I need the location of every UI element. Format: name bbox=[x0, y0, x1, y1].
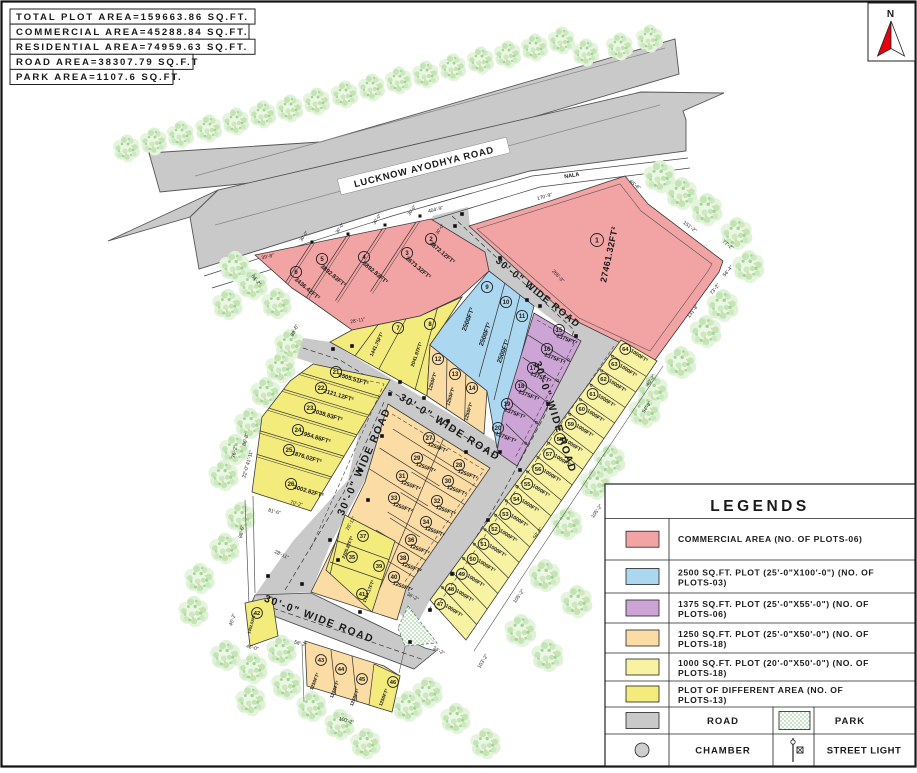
svg-text:47: 47 bbox=[437, 602, 443, 608]
svg-text:PLOTS-13): PLOTS-13) bbox=[678, 695, 727, 705]
svg-text:TOTAL PLOT AREA=159663.86 SQ.F: TOTAL PLOT AREA=159663.86 SQ.FT. bbox=[16, 12, 249, 23]
svg-text:1250 SQ.FT. PLOT (25'-0"X50'-0: 1250 SQ.FT. PLOT (25'-0"X50'-0") (NO. OF bbox=[678, 629, 869, 639]
svg-text:PLOTS-06): PLOTS-06) bbox=[678, 609, 727, 619]
svg-text:N: N bbox=[887, 9, 894, 20]
svg-text:43: 43 bbox=[318, 658, 325, 664]
svg-text:60: 60 bbox=[578, 407, 584, 413]
svg-text:ROAD: ROAD bbox=[707, 716, 739, 727]
svg-text:RESIDENTIAL AREA=74959.63 SQ.F: RESIDENTIAL AREA=74959.63 SQ.FT. bbox=[16, 42, 248, 53]
svg-text:57: 57 bbox=[546, 452, 552, 458]
svg-text:14: 14 bbox=[469, 386, 476, 392]
svg-text:1375 SQ.FT. PLOT (25'-0"X55'-0: 1375 SQ.FT. PLOT (25'-0"X55'-0") (NO. OF bbox=[678, 599, 869, 609]
svg-text:10: 10 bbox=[503, 300, 510, 306]
svg-text:1: 1 bbox=[595, 238, 599, 245]
svg-text:12: 12 bbox=[435, 357, 442, 363]
svg-text:PLOT OF DIFFERENT AREA (NO. OF: PLOT OF DIFFERENT AREA (NO. OF bbox=[678, 685, 843, 695]
svg-text:45: 45 bbox=[359, 677, 366, 683]
svg-text:59: 59 bbox=[568, 422, 575, 428]
svg-text:35: 35 bbox=[349, 555, 356, 561]
svg-text:PARK AREA=1107.6 SQ.FT.: PARK AREA=1107.6 SQ.FT. bbox=[16, 72, 183, 83]
svg-text:50: 50 bbox=[469, 557, 475, 563]
svg-text:53: 53 bbox=[502, 512, 509, 518]
svg-text:2500 SQ.FT. PLOT (25'-0"X100'-: 2500 SQ.FT. PLOT (25'-0"X100'-0") (NO. O… bbox=[678, 568, 874, 578]
svg-text:PARK: PARK bbox=[835, 716, 865, 727]
svg-text:55: 55 bbox=[524, 482, 531, 488]
svg-text:48: 48 bbox=[448, 587, 455, 593]
svg-text:64: 64 bbox=[622, 347, 629, 353]
svg-text:STREET LIGHT: STREET LIGHT bbox=[827, 746, 902, 757]
svg-text:11: 11 bbox=[519, 314, 526, 320]
svg-text:61: 61 bbox=[589, 392, 596, 398]
svg-text:62: 62 bbox=[600, 377, 606, 383]
svg-text:56: 56 bbox=[535, 467, 542, 473]
svg-text:63: 63 bbox=[611, 362, 618, 368]
svg-text:ROAD AREA=38307.79 SQ.F.T: ROAD AREA=38307.79 SQ.F.T bbox=[16, 57, 199, 68]
svg-text:52: 52 bbox=[491, 527, 497, 533]
svg-text:51: 51 bbox=[480, 542, 487, 548]
svg-text:LEGENDS: LEGENDS bbox=[710, 498, 809, 515]
svg-text:CHAMBER: CHAMBER bbox=[695, 746, 751, 757]
svg-text:1000 SQ.FT. PLOT (20'-0"X50'-0: 1000 SQ.FT. PLOT (20'-0"X50'-0") (NO. OF bbox=[678, 658, 869, 668]
svg-text:PLOTS-18): PLOTS-18) bbox=[678, 668, 727, 678]
svg-text:PLOTS-03): PLOTS-03) bbox=[678, 578, 727, 588]
svg-text:13: 13 bbox=[452, 372, 459, 378]
svg-text:PLOTS-18): PLOTS-18) bbox=[678, 639, 727, 649]
svg-text:37: 37 bbox=[360, 534, 366, 540]
svg-text:46: 46 bbox=[390, 680, 397, 686]
svg-text:39: 39 bbox=[376, 564, 383, 570]
svg-text:COMMERCIAL AREA=45288.84 SQ.FT: COMMERCIAL AREA=45288.84 SQ.FT. bbox=[16, 27, 248, 38]
svg-text:44: 44 bbox=[338, 667, 345, 673]
svg-text:COMMERCIAL AREA (NO. OF PLOTS-: COMMERCIAL AREA (NO. OF PLOTS-06) bbox=[678, 534, 862, 544]
svg-text:54: 54 bbox=[513, 497, 520, 503]
